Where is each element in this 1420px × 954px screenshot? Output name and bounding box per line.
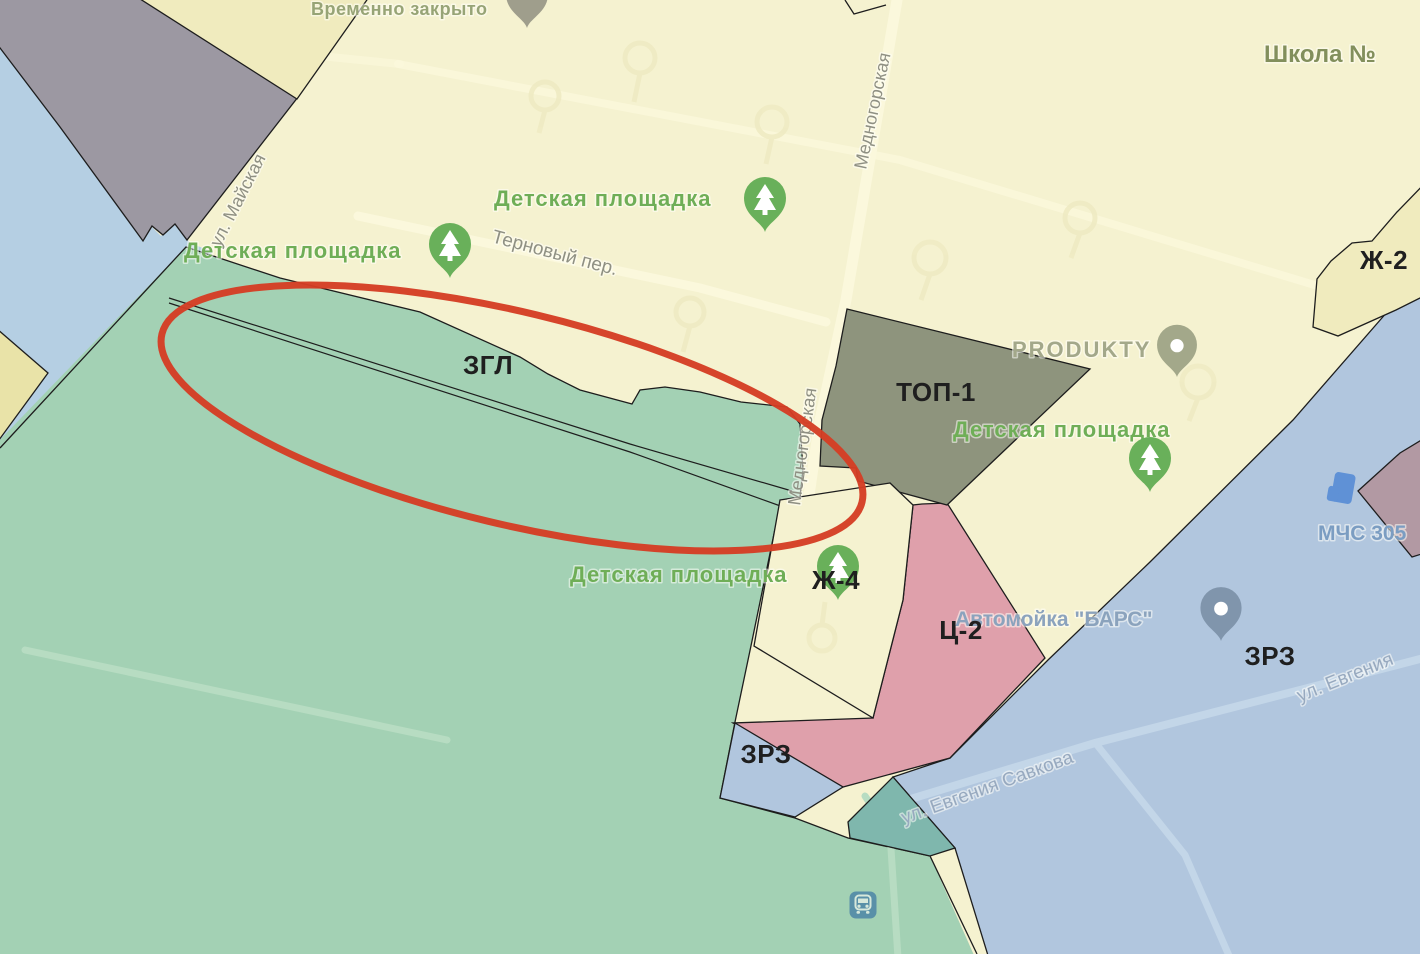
poi-label-playground-4[interactable]: Детская площадка	[570, 562, 788, 587]
zone-label-zh4: Ж-4	[811, 565, 860, 595]
poi-label-carwash[interactable]: Автомойка "БАРС"	[955, 608, 1152, 631]
zone-label-c2: Ц-2	[939, 615, 983, 645]
poi-label-school[interactable]: Школа №	[1264, 41, 1376, 68]
zone-label-top1: ТОП-1	[896, 377, 976, 407]
poi-label-temporarily-closed[interactable]: Временно закрыто	[311, 0, 488, 19]
map-canvas[interactable]: Временно закрыто Школа № Детская площадк…	[0, 0, 1420, 954]
poi-label-produkty[interactable]: PRODUKTY	[1012, 337, 1151, 362]
zone-label-zh2: Ж-2	[1359, 245, 1408, 275]
poi-label-mchs[interactable]: МЧС 305	[1318, 522, 1407, 545]
poi-label-playground-3[interactable]: Детская площадка	[953, 417, 1171, 442]
transit-station-icon[interactable]	[850, 892, 877, 919]
zone-label-zrz-left: ЗРЗ	[740, 739, 791, 769]
zoning-map: Временно закрыто Школа № Детская площадк…	[0, 0, 1420, 954]
zone-label-zrz-right: ЗРЗ	[1244, 641, 1295, 671]
poi-label-playground-2[interactable]: Детская площадка	[494, 186, 712, 211]
zone-label-zgl: ЗГЛ	[463, 350, 513, 380]
